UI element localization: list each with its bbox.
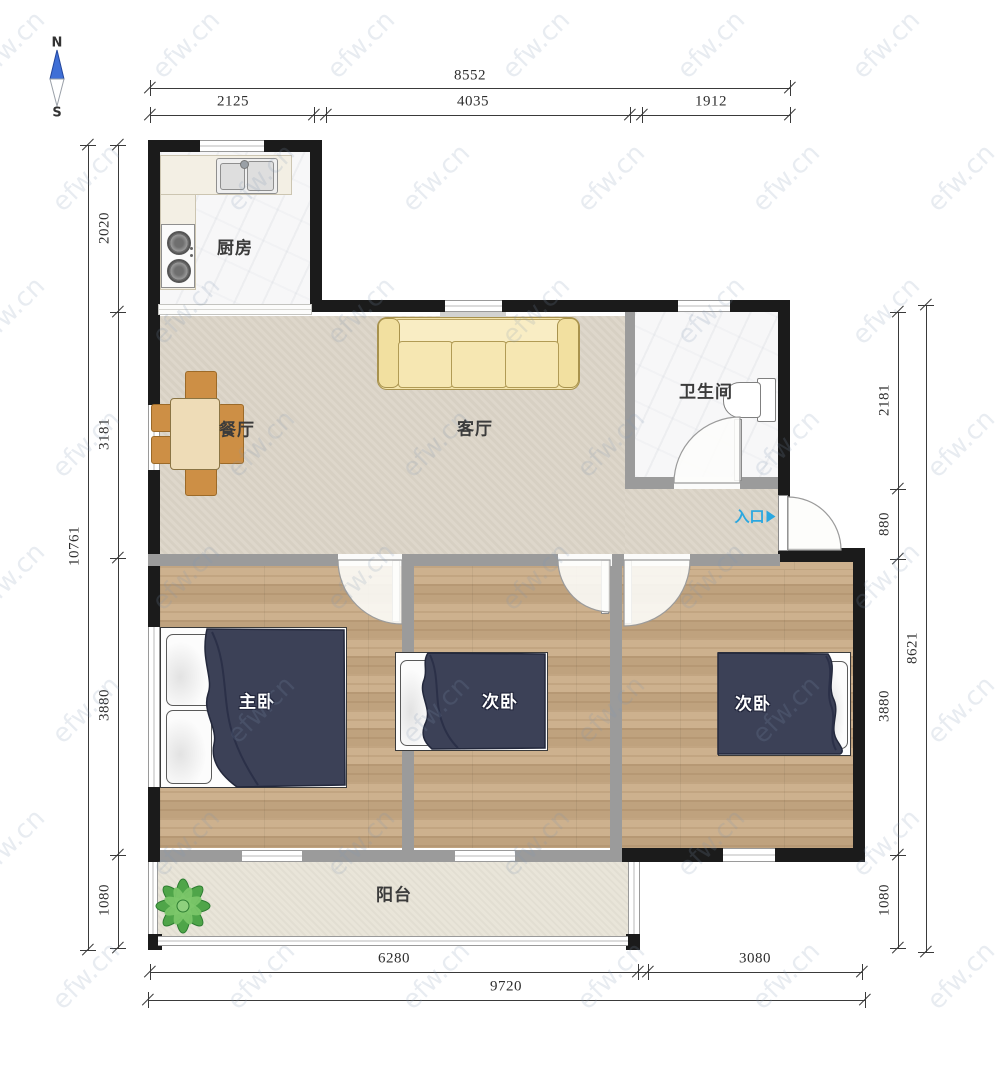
door-leaf-bed3 — [624, 560, 632, 624]
dim-top-seg-2: 4035 — [457, 94, 489, 111]
entrance-text: 入口 — [734, 506, 764, 527]
dim-bottom-seg-2: 3080 — [739, 951, 771, 968]
watermark-text: efw.cn — [921, 936, 997, 1016]
dim-right-seg-1: 2181 — [877, 384, 894, 416]
watermark-text: efw.cn — [0, 537, 51, 617]
watermark-text: efw.cn — [571, 936, 651, 1016]
watermark-text: efw.cn — [321, 5, 401, 85]
watermark-text: efw.cn — [671, 271, 751, 351]
watermark-text: efw.cn — [0, 271, 51, 351]
dim-right-seg-4: 1080 — [877, 884, 894, 916]
dining-chair-bottom — [185, 466, 217, 496]
watermark-text: efw.cn — [846, 537, 926, 617]
watermark-text: efw.cn — [496, 537, 576, 617]
watermark-text: efw.cn — [0, 803, 51, 883]
watermark-text: efw.cn — [571, 670, 651, 750]
watermark-text: efw.cn — [671, 803, 751, 883]
dim-left-seg-3: 3880 — [97, 689, 114, 721]
door-leaf-bathroom — [734, 419, 742, 481]
sink-faucet — [240, 160, 249, 169]
stove-burner-1 — [167, 231, 191, 255]
master-bedroom-label: 主卧 — [239, 688, 275, 713]
watermark-text: efw.cn — [0, 5, 51, 85]
pillow-bed3 — [824, 661, 848, 749]
watermark-text: efw.cn — [671, 5, 751, 85]
watermark-text: efw.cn — [846, 803, 926, 883]
dim-left-seg-4: 1080 — [97, 884, 114, 916]
door-leaf-bed2 — [601, 560, 609, 614]
stove-knob-1 — [190, 247, 193, 250]
entrance-label: 入口 — [734, 506, 775, 527]
watermark-text: efw.cn — [321, 803, 401, 883]
door-leaf-entry — [778, 495, 788, 551]
bathroom-label: 卫生间 — [679, 378, 733, 403]
sofa-back — [393, 319, 564, 343]
watermark-text: efw.cn — [921, 138, 997, 218]
watermark-text: efw.cn — [846, 5, 926, 85]
floor-plan-canvas: 厨房 餐厅 客厅 卫生间 主卧 次卧 次卧 阳台 入口 N S 8552 212… — [0, 0, 997, 1080]
watermark-layer: efw.cnefw.cnefw.cnefw.cnefw.cnefw.cnefw.… — [0, 0, 997, 1080]
dim-top-seg-1: 2125 — [217, 94, 249, 111]
watermark-text: efw.cn — [146, 537, 226, 617]
watermark-text: efw.cn — [496, 5, 576, 85]
compass-north-label: N — [52, 36, 63, 51]
balcony-label: 阳台 — [376, 881, 412, 906]
watermark-text: efw.cn — [746, 138, 826, 218]
bedroom3-label: 次卧 — [735, 690, 771, 715]
watermark-text: efw.cn — [396, 936, 476, 1016]
pillow-master-1 — [166, 634, 212, 706]
watermark-text: efw.cn — [921, 404, 997, 484]
watermark-text: efw.cn — [146, 803, 226, 883]
stove-burner-2 — [167, 259, 191, 283]
watermark-text: efw.cn — [571, 404, 651, 484]
dim-right-seg-2: 880 — [877, 512, 894, 536]
watermark-text: efw.cn — [571, 138, 651, 218]
sofa-cushion-2 — [451, 341, 507, 388]
dim-bottom-total: 9720 — [490, 979, 522, 996]
dim-left-total: 10761 — [67, 526, 84, 566]
watermark-text: efw.cn — [221, 936, 301, 1016]
entrance-arrow-icon — [767, 510, 776, 522]
dim-top-seg-3: 1912 — [695, 94, 727, 111]
bedroom2-label: 次卧 — [482, 688, 518, 713]
dim-bottom-seg-1: 6280 — [378, 951, 410, 968]
dining-label: 餐厅 — [219, 416, 255, 441]
watermark-text: efw.cn — [496, 803, 576, 883]
dim-left-seg-1: 2020 — [97, 212, 114, 244]
watermark-text: efw.cn — [396, 138, 476, 218]
watermark-text: efw.cn — [746, 936, 826, 1016]
watermark-text: efw.cn — [46, 670, 126, 750]
watermark-text: efw.cn — [671, 537, 751, 617]
watermark-text: efw.cn — [846, 271, 926, 351]
dining-table — [170, 398, 220, 470]
sofa-cushion-3 — [505, 341, 559, 388]
compass-south-label: S — [52, 106, 61, 121]
watermark-text: efw.cn — [46, 138, 126, 218]
sink-basin-right — [247, 161, 274, 191]
watermark-text: efw.cn — [921, 670, 997, 750]
watermark-text: efw.cn — [321, 537, 401, 617]
pillow-master-2 — [166, 710, 212, 784]
dim-left-seg-2: 3181 — [97, 418, 114, 450]
dim-top-total: 8552 — [454, 68, 486, 85]
watermark-text: efw.cn — [146, 5, 226, 85]
watermark-text: efw.cn — [46, 404, 126, 484]
sofa-arm-left — [378, 318, 400, 388]
door-leaf-master — [392, 560, 400, 622]
dim-right-total: 8621 — [905, 632, 922, 664]
sofa-arm-right — [557, 318, 579, 388]
pillow-bed2 — [400, 660, 434, 746]
dim-right-seg-3: 3880 — [877, 690, 894, 722]
watermark-text: efw.cn — [46, 936, 126, 1016]
stove-knob-2 — [190, 254, 193, 257]
kitchen-label: 厨房 — [217, 234, 253, 259]
living-label: 客厅 — [457, 415, 493, 440]
sofa-cushion-1 — [398, 341, 453, 388]
